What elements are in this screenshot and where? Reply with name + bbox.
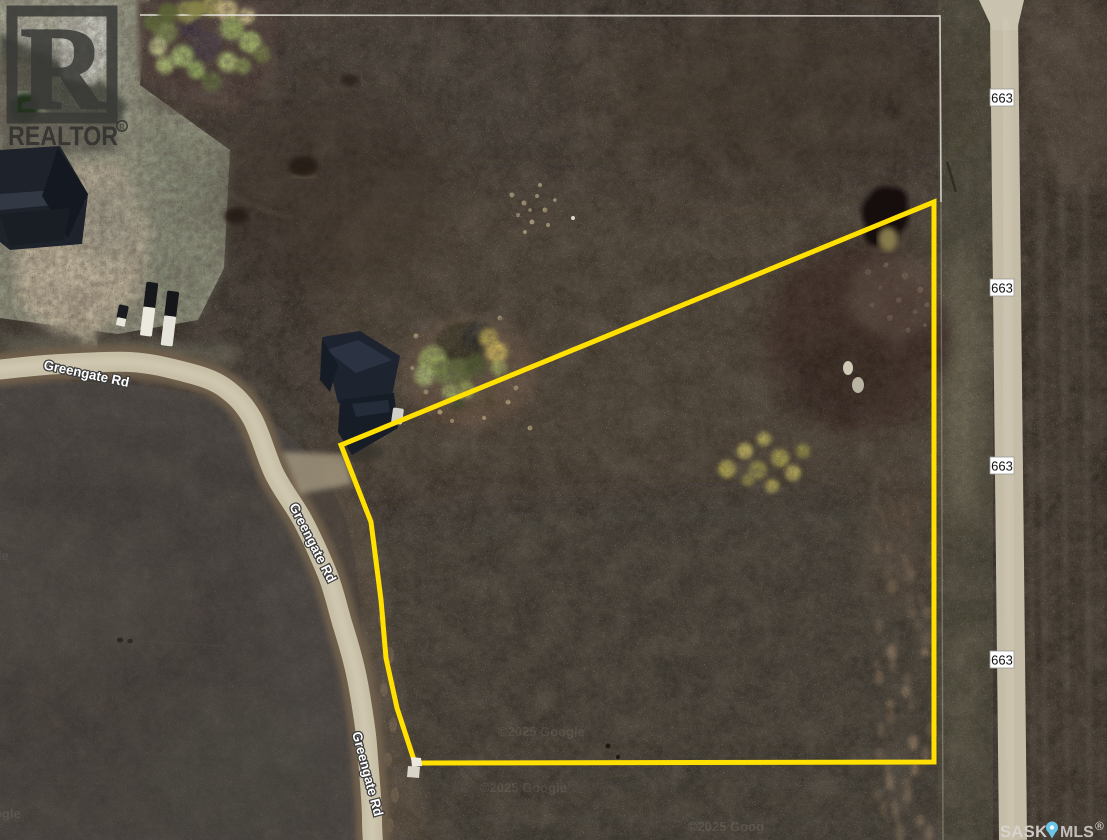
svg-text:MLS: MLS [1060,824,1094,840]
svg-text:663: 663 [991,280,1013,295]
svg-text:©2025 Google: ©2025 Google [498,724,585,739]
svg-text:®: ® [1095,819,1104,833]
svg-text:gle: gle [0,548,9,563]
svg-text:©2025 Google: ©2025 Google [480,780,567,795]
svg-text:R: R [20,3,107,134]
svg-text:663: 663 [991,90,1013,105]
svg-text:©2025 Goog: ©2025 Goog [688,819,764,834]
svg-text:663: 663 [991,652,1013,667]
svg-text:REALTOR: REALTOR [8,121,118,151]
svg-text:663: 663 [991,458,1013,473]
svg-text:oogle: oogle [0,806,21,821]
svg-text:R: R [119,122,125,131]
svg-text:SASK: SASK [1000,823,1047,840]
